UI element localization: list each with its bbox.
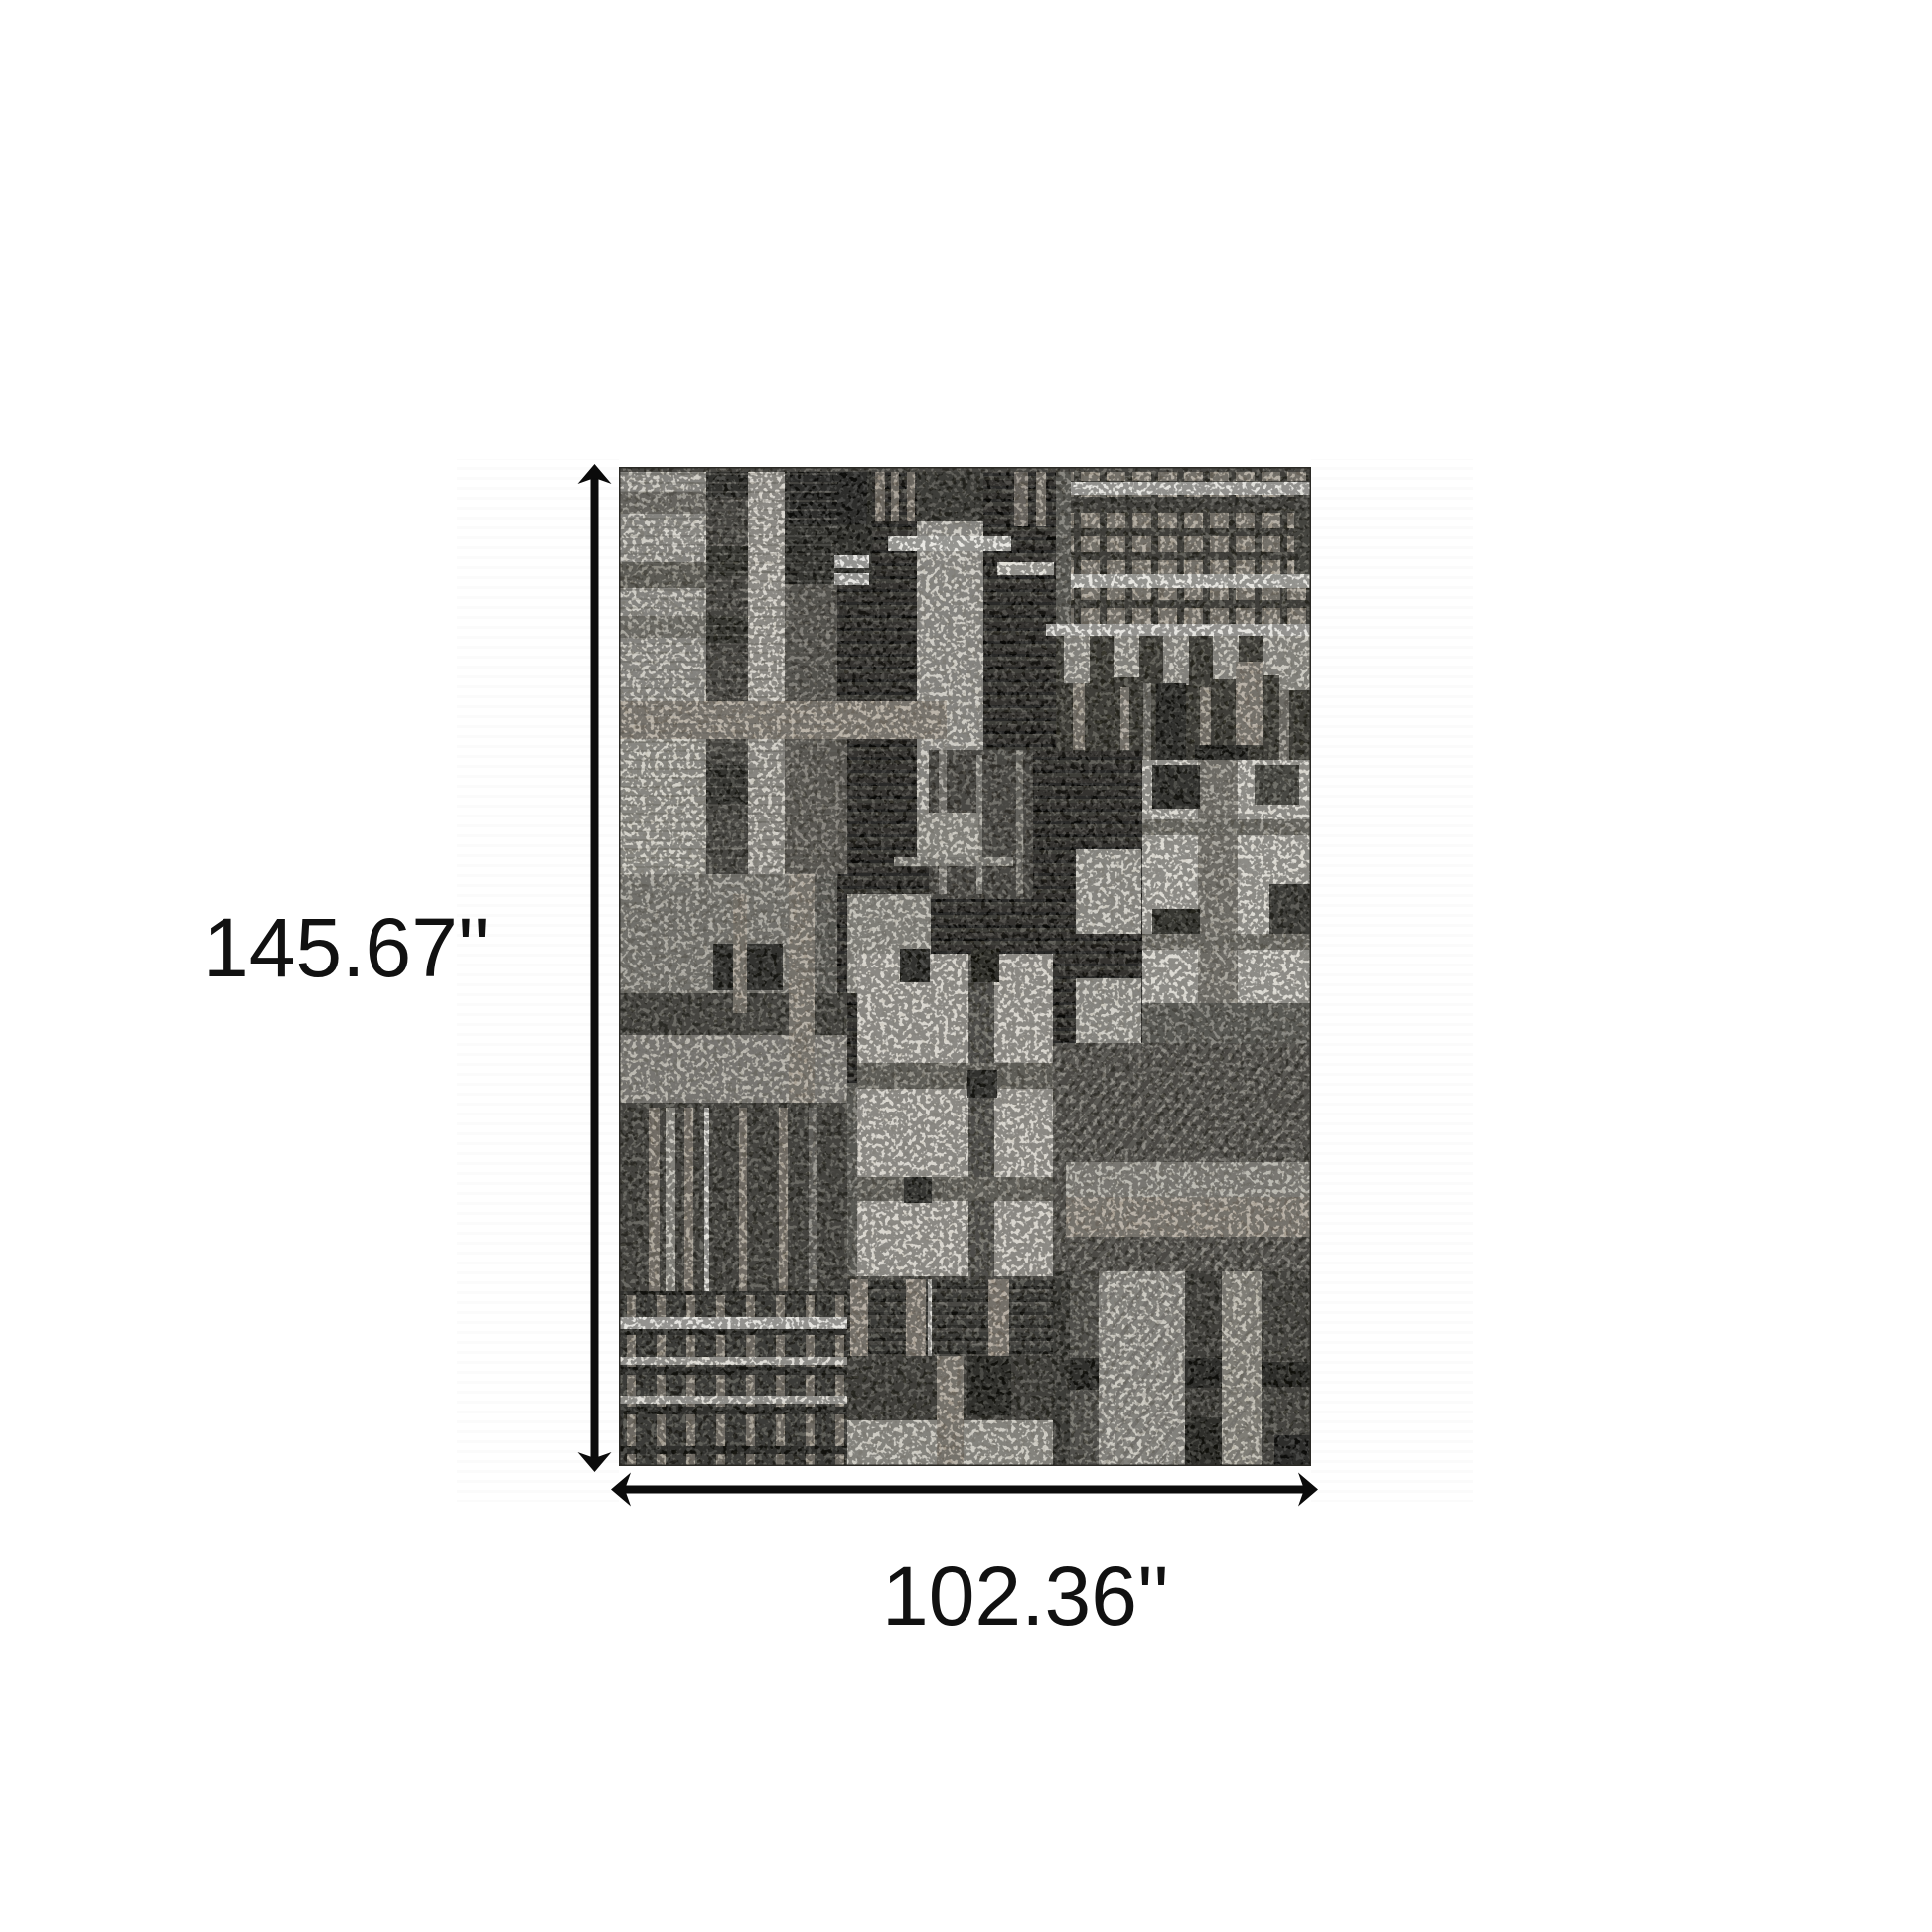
svg-text:145.67'': 145.67'' — [203, 901, 490, 994]
svg-text:102.36'': 102.36'' — [882, 1550, 1169, 1643]
